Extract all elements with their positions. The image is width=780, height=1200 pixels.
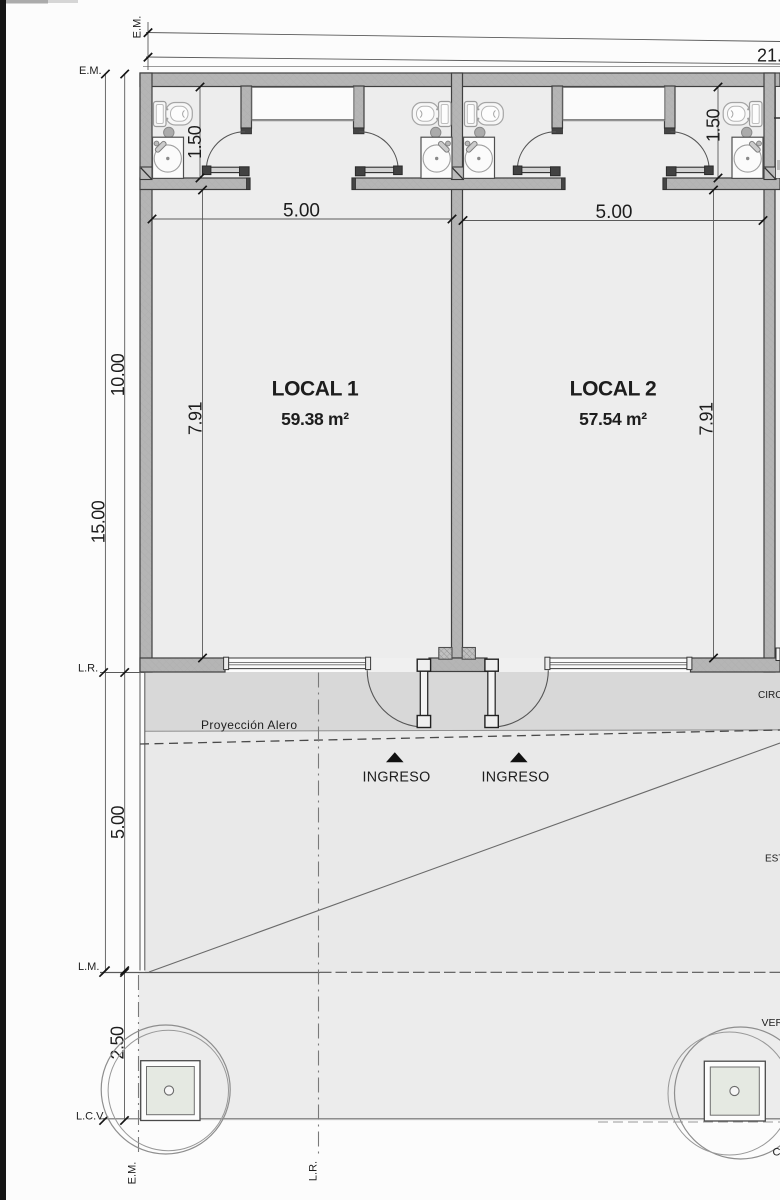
- svg-text:7.91: 7.91: [697, 402, 717, 436]
- svg-text:1.50: 1.50: [185, 125, 205, 159]
- svg-text:5.00: 5.00: [596, 202, 633, 223]
- svg-text:INGRESO: INGRESO: [481, 770, 549, 786]
- svg-text:L.M.: L.M.: [78, 961, 99, 973]
- svg-text:VERE: VERE: [762, 1017, 780, 1029]
- svg-text:L.R.: L.R.: [78, 663, 98, 675]
- svg-text:E.M.: E.M.: [132, 16, 144, 39]
- svg-text:Proyección Alero: Proyección Alero: [201, 718, 297, 732]
- svg-text:2.50: 2.50: [108, 1026, 128, 1060]
- svg-text:E.M.: E.M.: [79, 65, 102, 77]
- svg-text:59.38 m²: 59.38 m²: [281, 409, 349, 429]
- svg-text:CIRCU: CIRCU: [758, 690, 780, 701]
- svg-text:ESTA: ESTA: [765, 854, 780, 865]
- svg-text:LOCAL 1: LOCAL 1: [272, 378, 359, 401]
- svg-text:5.00: 5.00: [108, 806, 128, 840]
- svg-text:C: C: [773, 1147, 780, 1159]
- svg-text:INGRESO: INGRESO: [362, 770, 430, 786]
- svg-text:L.C.V.: L.C.V.: [76, 1111, 106, 1123]
- svg-text:LOCAL 2: LOCAL 2: [570, 378, 657, 401]
- svg-text:1.50: 1.50: [704, 109, 724, 143]
- svg-text:E.M.: E.M.: [127, 1162, 139, 1185]
- svg-text:10.00: 10.00: [108, 353, 128, 396]
- svg-text:15.00: 15.00: [89, 500, 109, 543]
- svg-text:57.54 m²: 57.54 m²: [579, 409, 647, 429]
- svg-text:L.R.: L.R.: [308, 1161, 320, 1181]
- svg-text:5.00: 5.00: [283, 201, 320, 222]
- svg-text:7.91: 7.91: [186, 402, 206, 436]
- svg-text:21.4: 21.4: [757, 46, 780, 66]
